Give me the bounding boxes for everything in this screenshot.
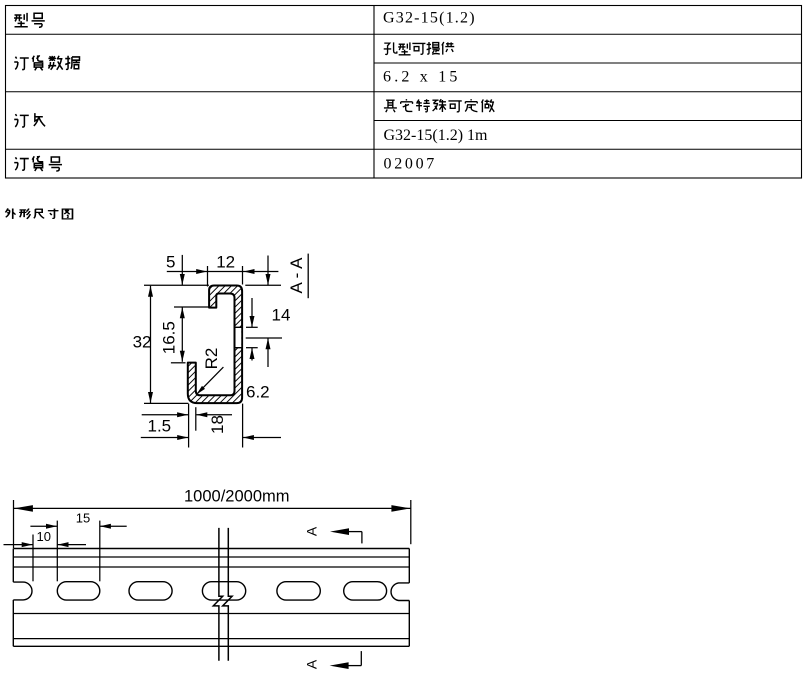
svg-text:02007: 02007 [384,156,438,173]
svg-text:32: 32 [133,333,152,352]
svg-text:A - A: A - A [287,257,306,294]
svg-text:1.5: 1.5 [148,417,172,436]
svg-text:10: 10 [37,529,51,544]
svg-text:G32-15(1.2): G32-15(1.2) [383,10,476,27]
svg-text:G32-15(1.2) 1m: G32-15(1.2) 1m [384,127,489,144]
svg-text:5: 5 [166,252,175,271]
svg-text:18: 18 [208,415,227,434]
svg-text:6.2: 6.2 [246,383,270,402]
svg-text:14: 14 [272,305,291,324]
svg-text:16.5: 16.5 [160,321,179,354]
svg-text:1000/2000mm: 1000/2000mm [184,488,290,506]
svg-text:6.2 x 15: 6.2 x 15 [383,69,461,86]
svg-text:A: A [304,659,320,669]
svg-text:A: A [303,526,319,536]
svg-text:15: 15 [76,511,90,526]
svg-text:12: 12 [216,252,235,271]
svg-text:R2: R2 [202,348,221,370]
